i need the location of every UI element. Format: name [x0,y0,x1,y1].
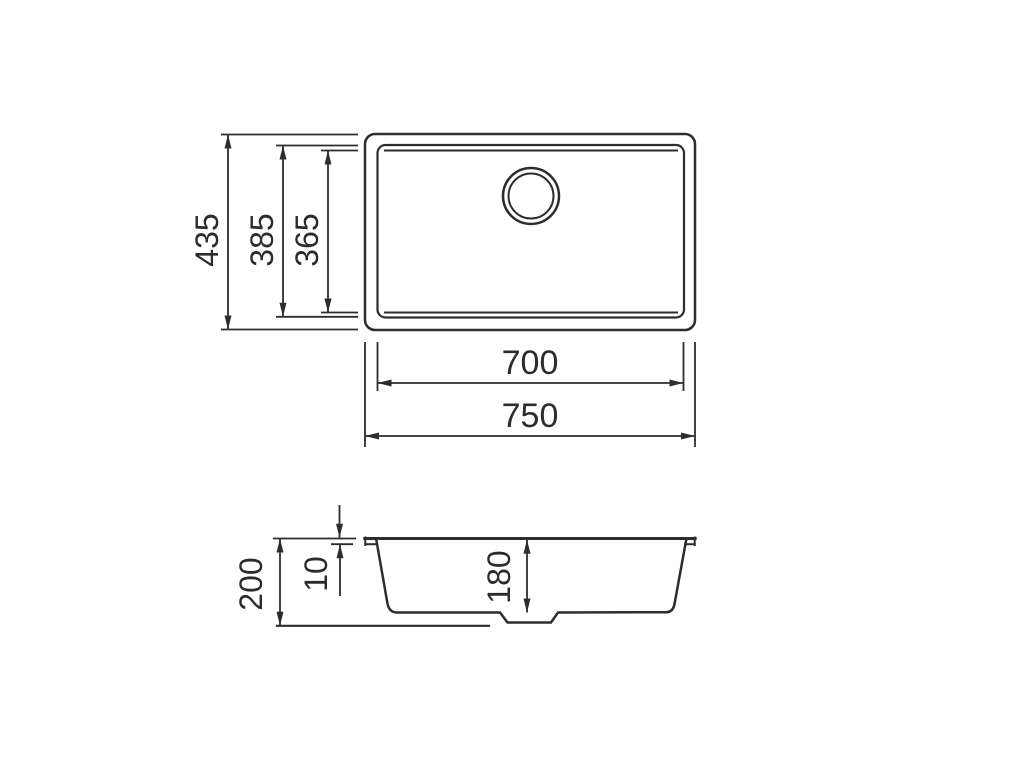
dimension-label-rim-thickness: 10 [298,556,334,592]
sink-dimension-drawing: 435 385 365 700 750 [0,0,1024,768]
dimension-label-total-depth: 200 [233,557,269,610]
dim-total-depth: 200 [233,539,356,626]
drain-icon [503,168,559,224]
technical-drawing-canvas: 435 385 365 700 750 [0,0,1024,768]
dimension-label-overall-width: 750 [502,397,559,435]
dimension-label-overall-height: 435 [189,213,225,266]
dim-bowl-width: 700 [378,342,684,391]
sink-inner-edge [378,145,685,318]
sink-outer-edge [365,134,695,330]
dim-rim-thickness: 10 [298,505,353,596]
sink-top-view [365,134,695,330]
bowl-profile-outline [377,541,687,623]
dim-bowl-height: 365 [289,151,358,313]
dimension-label-bowl-depth: 180 [481,550,517,603]
dimension-label-bowl-height: 365 [289,213,325,266]
dimension-label-bowl-width: 700 [502,344,559,382]
drain-inner-circle [509,174,554,219]
dim-bowl-depth: 180 [481,540,527,613]
drain-outer-circle [503,168,559,224]
dimension-label-inner-height: 385 [244,213,280,266]
